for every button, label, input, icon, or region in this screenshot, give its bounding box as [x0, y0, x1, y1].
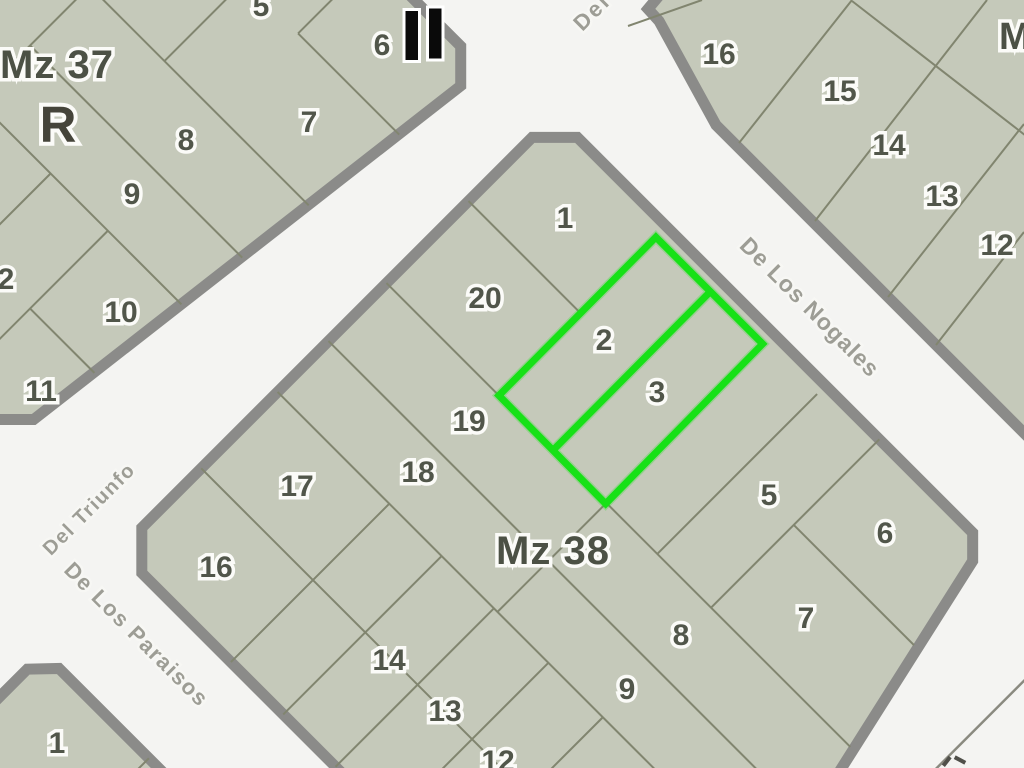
svg-text:15: 15 [823, 75, 856, 108]
svg-text:5: 5 [761, 479, 778, 512]
svg-text:2: 2 [0, 263, 14, 296]
svg-text:12: 12 [481, 745, 514, 768]
svg-text:8: 8 [178, 124, 195, 157]
svg-text:16: 16 [199, 551, 232, 584]
svg-text:7: 7 [798, 602, 815, 635]
svg-text:13: 13 [925, 180, 958, 213]
svg-text:16: 16 [702, 38, 735, 71]
svg-text:2: 2 [596, 324, 613, 357]
svg-text:12: 12 [980, 229, 1013, 262]
svg-text:20: 20 [468, 282, 501, 315]
svg-text:10: 10 [104, 296, 137, 329]
svg-text:8: 8 [673, 619, 690, 652]
svg-text:5: 5 [253, 0, 270, 23]
svg-text:13: 13 [428, 695, 461, 728]
svg-text:14: 14 [372, 644, 406, 677]
svg-text:18: 18 [401, 456, 434, 489]
svg-text:3: 3 [649, 376, 666, 409]
svg-text:1: 1 [49, 727, 66, 760]
svg-text:6: 6 [877, 517, 894, 550]
svg-text:19: 19 [452, 405, 485, 438]
svg-text:Mz 38: Mz 38 [496, 529, 610, 573]
svg-text:9: 9 [124, 178, 141, 211]
svg-text:Mz 39: Mz 39 [999, 16, 1024, 58]
svg-text:1: 1 [557, 202, 574, 235]
svg-text:7: 7 [301, 106, 318, 139]
svg-text:6: 6 [374, 29, 391, 62]
svg-text:14: 14 [872, 129, 906, 162]
svg-text:17: 17 [280, 470, 313, 503]
svg-text:11: 11 [25, 375, 57, 408]
svg-text:9: 9 [619, 673, 636, 706]
svg-text:R: R [40, 96, 77, 153]
svg-text:Mz 37: Mz 37 [0, 43, 114, 87]
